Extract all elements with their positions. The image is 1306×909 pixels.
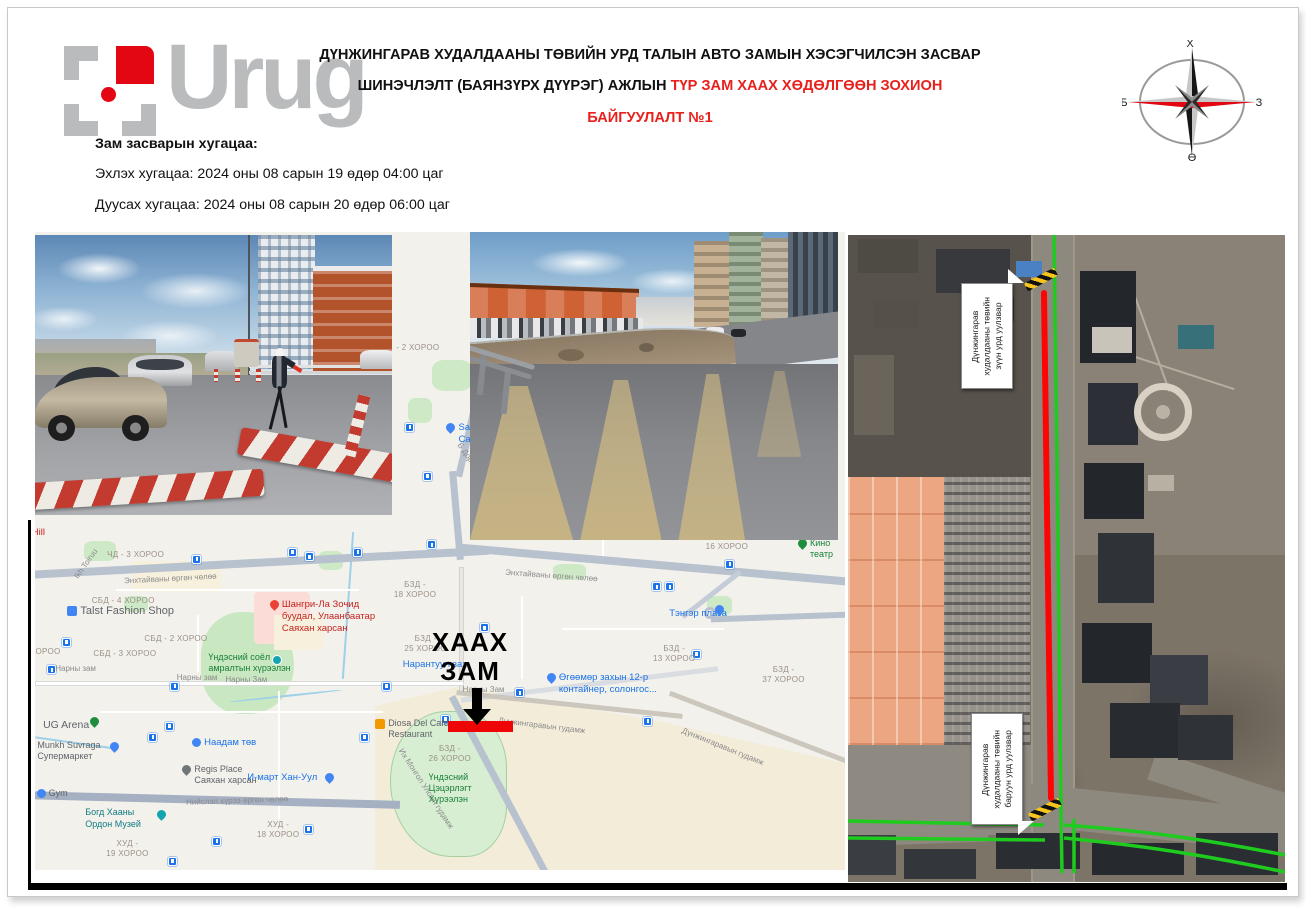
callout-west-text: Дүнжингарав худалдааны төвийн баруун урд… — [980, 730, 1015, 809]
transit-stop-icon — [165, 722, 174, 731]
transit-stop-icon — [353, 548, 362, 557]
map-label: UG Arena — [43, 719, 89, 732]
closure-arrow — [472, 688, 482, 710]
map-label: БЗД - 37 ХОРОО — [762, 665, 804, 685]
map-label: БЗД - 26 ХОРОО — [429, 744, 471, 764]
circ-blue-icon — [192, 738, 201, 747]
callout-pointer — [1018, 821, 1034, 835]
map-label: Diosa Del Cafe Restaurant — [375, 718, 449, 741]
transit-stop-icon — [304, 825, 313, 834]
repair-schedule: Зам засварын хугацаа: Эхлэх хугацаа: 202… — [95, 136, 450, 228]
compass-south-label: Ө — [1188, 152, 1197, 164]
photo1-right-car — [360, 350, 392, 370]
pin-red-icon — [268, 599, 281, 612]
map-label: Munkh Suvraga Супермаркет — [37, 740, 100, 763]
pin-blue-icon — [545, 671, 558, 684]
transit-stop-icon — [665, 582, 674, 591]
transit-stop-icon — [405, 423, 414, 432]
photo2-distant-car — [731, 329, 746, 337]
transit-stop-icon — [360, 733, 369, 742]
photo1-bus — [234, 339, 259, 367]
transit-stop-icon — [212, 837, 221, 846]
pin-gray-icon — [181, 763, 194, 776]
logo-red-square — [116, 46, 154, 84]
callout-east-text: Дүнжингарав худалдааны төвийн зүүн урд у… — [970, 297, 1005, 376]
pin-blue-icon — [108, 740, 121, 753]
callout-east-junction: Дүнжингарав худалдааны төвийн зүүн урд у… — [961, 283, 1013, 389]
closure-arrow-head — [463, 709, 491, 725]
sq-orange-icon — [375, 719, 385, 729]
schedule-end: Дуусах хугацаа: 2024 оны 08 сарын 20 өдө… — [95, 197, 450, 213]
compass-icon: Х Ө Б З — [1122, 40, 1262, 165]
map-label — [110, 741, 119, 751]
map-label — [325, 772, 334, 782]
photo2-building — [729, 232, 762, 327]
transit-stop-icon — [148, 733, 157, 742]
title-line1: ДҮНЖИНГАРАВ ХУДАЛДААНЫ ТӨВИЙН УРД ТАЛЫН … — [318, 40, 982, 71]
map-label: Өгөөмөр захын 12-р контайнер, солонгос..… — [547, 672, 657, 696]
transit-stop-icon — [62, 638, 71, 647]
map-label: БЗД - 13 ХОРОО — [653, 644, 695, 664]
logo-red-dot — [101, 87, 116, 102]
map-label: ХУД - 19 ХОРОО — [106, 839, 148, 859]
map-label: БЗД - 18 ХОРОО — [394, 580, 436, 600]
map-label: Үндэсний Цэцэрлэгт Хүрээлэн — [429, 772, 472, 806]
map-label — [157, 809, 166, 819]
compass-rose: Х Ө Б З — [1122, 40, 1262, 165]
closed-route-line — [1044, 293, 1051, 798]
satellite-plan: Дүнжингарав худалдааны төвийн зүүн урд у… — [848, 235, 1285, 882]
pin-green-icon — [88, 715, 101, 728]
decor — [449, 471, 464, 561]
decor — [408, 398, 432, 424]
photo-traffic-control — [35, 235, 392, 515]
traffic-cone — [214, 369, 219, 382]
transit-stop-icon — [427, 540, 436, 549]
map-label: СБД - 3 ХОРОО — [93, 649, 156, 659]
pin-blue-icon — [323, 772, 336, 785]
map-label: Нарны Зам — [225, 675, 267, 685]
map-label: Нийслэл хүрээ өргөн чөлөө — [186, 794, 288, 808]
map-label: ХОРОО — [35, 647, 61, 657]
transit-stop-icon — [192, 555, 201, 564]
transit-stop-icon — [288, 548, 297, 557]
bottom-frame-line — [28, 883, 1287, 890]
transit-stop-icon — [305, 552, 314, 561]
pin-blue-icon — [714, 603, 727, 616]
bag-blue-icon — [67, 606, 77, 616]
transit-stop-icon — [643, 717, 652, 726]
map-label: Нарны зам — [55, 664, 96, 674]
compass-west-label: Б — [1122, 97, 1128, 109]
schedule-heading: Зам засварын хугацаа: — [95, 136, 450, 152]
transit-stop-icon — [423, 472, 432, 481]
map-label: ХУД - 18 ХОРОО — [257, 820, 299, 840]
title-line2-black: ШИНЭЧЛЭЛТ (БАЯНЗҮРХ ДҮҮРЭГ) АЖЛЫН — [358, 78, 671, 94]
transit-stop-icon — [382, 682, 391, 691]
traffic-cone — [235, 369, 240, 382]
decor — [116, 589, 359, 591]
route-lines — [848, 235, 1285, 882]
map-label: Talst Fashion Shop — [67, 605, 174, 619]
schedule-start: Эхлэх хугацаа: 2024 оны 08 сарын 19 өдөр… — [95, 166, 450, 182]
photo2-building — [694, 241, 733, 327]
decor — [432, 360, 473, 392]
circ-blue-icon — [37, 789, 46, 798]
pin-blue-icon — [445, 421, 458, 434]
callout-west-junction: Дүнжингарав худалдааны төвийн баруун урд… — [971, 713, 1023, 825]
decor — [562, 628, 724, 630]
document-title: ДҮНЖИНГАРАВ ХУДАЛДААНЫ ТӨВИЙН УРД ТАЛЫН … — [318, 40, 982, 134]
traffic-officer — [262, 348, 298, 432]
map-label: Нарны зам — [177, 673, 218, 683]
closure-label: ХААХ ЗАМ — [432, 628, 529, 688]
map-label: Кино театр — [798, 538, 845, 561]
map-label-hill: Hill — [35, 527, 45, 539]
callout-pointer — [1008, 269, 1024, 283]
decor — [457, 544, 845, 587]
map-label: Шангри-Ла Зочид буудал, Улаанбаатар Саях… — [270, 599, 375, 635]
map-label: 16 ХОРОО — [706, 542, 748, 552]
compass-east-label: З — [1256, 97, 1262, 109]
map-label: СБД - 2 ХОРОО — [144, 634, 207, 644]
title-line2: ШИНЭЧЛЭЛТ (БАЯНЗҮРХ ДҮҮРЭГ) АЖЛЫН ТҮР ЗА… — [318, 71, 982, 134]
transit-stop-icon — [168, 857, 177, 866]
decor — [711, 611, 845, 622]
transit-stop-icon — [725, 560, 734, 569]
map-label: Наадам төв — [192, 737, 256, 749]
compass-north-label: Х — [1186, 40, 1194, 50]
map-label: ЧД - 3 ХОРОО — [107, 550, 164, 560]
photo1-tan-car — [35, 364, 167, 437]
left-frame-line — [28, 520, 31, 883]
map-label — [272, 654, 282, 665]
map-label — [715, 604, 724, 614]
circ-teal-icon — [272, 655, 282, 665]
traffic-cone — [256, 369, 261, 382]
photo2-rocks — [639, 343, 654, 352]
map-label: Regis Place Саяхан харсан — [182, 764, 256, 787]
map-label: Богд Хааны Ордон Музей — [85, 807, 141, 830]
map-label: Gym — [37, 788, 68, 799]
transit-stop-icon — [515, 688, 524, 697]
pin-teal-icon — [155, 809, 168, 822]
map-label — [90, 716, 99, 726]
transit-stop-icon — [652, 582, 661, 591]
map-label: - 2 ХОРОО — [396, 343, 439, 353]
map-label: И-март Хан-Уул — [247, 772, 317, 784]
decor — [100, 711, 384, 713]
photo-road-section — [470, 232, 838, 540]
